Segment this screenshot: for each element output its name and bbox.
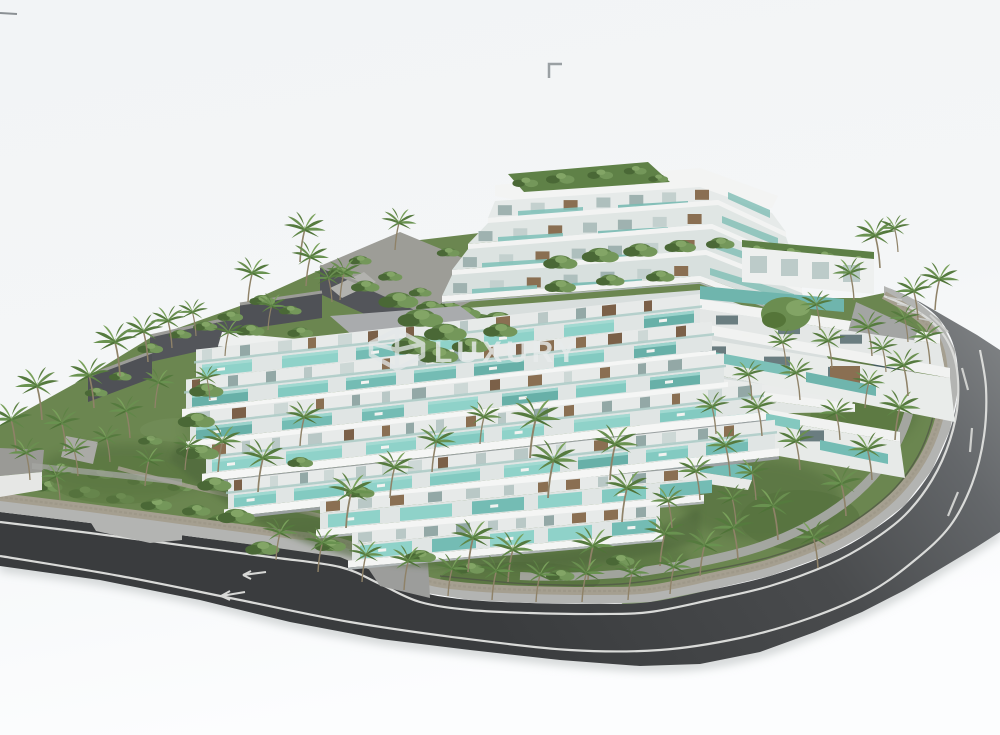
svg-text:LUXURY: LUXURY [434,336,580,369]
